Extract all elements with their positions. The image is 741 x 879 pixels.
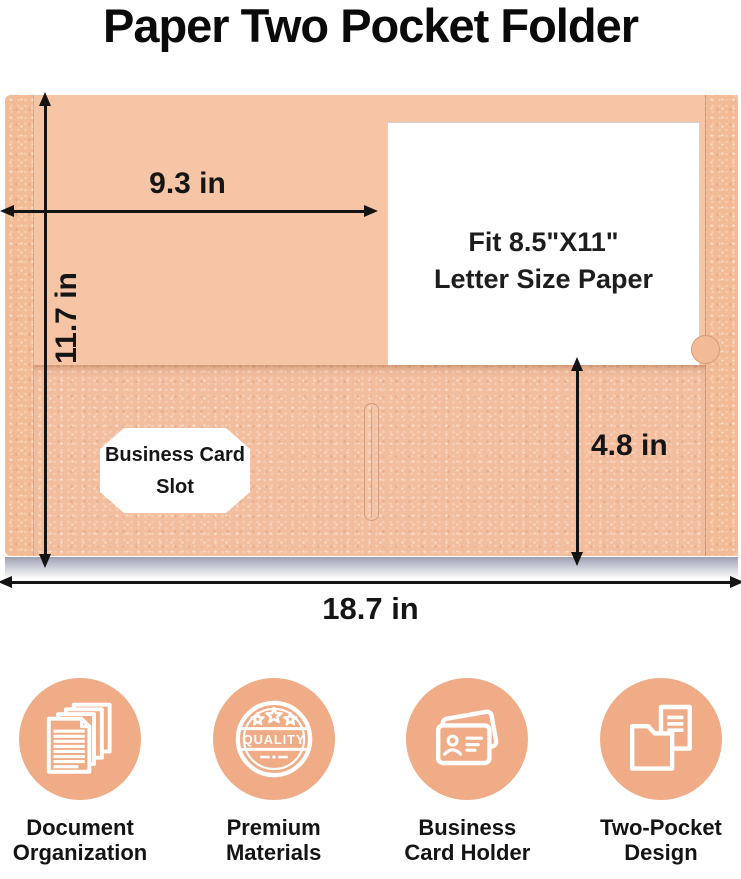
page-title: Paper Two Pocket Folder bbox=[0, 0, 741, 52]
feature-label: Business Card Holder bbox=[404, 815, 530, 865]
feature-circle bbox=[19, 678, 141, 800]
two-pocket-folder-icon bbox=[621, 699, 701, 779]
product-infographic: Paper Two Pocket Folder Fit 8.5"X11" Let… bbox=[0, 0, 741, 879]
thumb-notch bbox=[691, 335, 720, 364]
feature-label-line1: Premium bbox=[226, 815, 321, 840]
feature-label-line2: Card Holder bbox=[404, 840, 530, 865]
width-dimension-arrow bbox=[12, 210, 366, 213]
width-dimension-label: 9.3 in bbox=[100, 167, 275, 201]
folder-shadow bbox=[5, 557, 738, 579]
feature-circle bbox=[406, 678, 528, 800]
pocket-height-dimension-arrow bbox=[576, 369, 579, 554]
feature-label-line1: Two-Pocket bbox=[600, 815, 722, 840]
letter-paper: Fit 8.5"X11" Letter Size Paper bbox=[387, 122, 700, 367]
feature-label-line2: Organization bbox=[13, 840, 147, 865]
feature-label-line1: Business bbox=[404, 815, 530, 840]
feature-label-line1: Document bbox=[13, 815, 147, 840]
height-dimension-label: 11.7 in bbox=[50, 256, 90, 380]
feature-two-pocket-design: Two-Pocket Design bbox=[581, 678, 741, 865]
pocket-crease bbox=[364, 403, 379, 521]
paper-size-note: Fit 8.5"X11" Letter Size Paper bbox=[434, 224, 653, 298]
height-dimension-arrow bbox=[44, 104, 47, 556]
business-card-slot-line2: Slot bbox=[156, 471, 194, 503]
feature-circle bbox=[600, 678, 722, 800]
total-width-dimension-label: 18.7 in bbox=[0, 591, 741, 627]
business-card-icon bbox=[427, 699, 507, 779]
business-card-slot-line1: Business Card bbox=[105, 439, 245, 471]
folder-spine bbox=[5, 95, 34, 556]
documents-icon bbox=[41, 700, 119, 778]
total-width-dimension-arrow bbox=[10, 581, 732, 584]
feature-business-card-holder: Business Card Holder bbox=[387, 678, 547, 865]
feature-label: Document Organization bbox=[13, 815, 147, 865]
folder-right-flap bbox=[705, 95, 738, 556]
business-card-slot-label: Business Card Slot bbox=[100, 428, 250, 513]
feature-label-line2: Materials bbox=[226, 840, 321, 865]
feature-label: Two-Pocket Design bbox=[600, 815, 722, 865]
pocket-height-dimension-label: 4.8 in bbox=[591, 429, 668, 463]
paper-size-note-line1: Fit 8.5"X11" bbox=[434, 224, 653, 261]
feature-document-organization: Document Organization bbox=[0, 678, 160, 865]
feature-label-line2: Design bbox=[600, 840, 722, 865]
paper-size-note-line2: Letter Size Paper bbox=[434, 261, 653, 298]
feature-circle: QUALITY bbox=[213, 678, 335, 800]
folder-illustration: Fit 8.5"X11" Letter Size Paper Business … bbox=[5, 95, 738, 556]
feature-premium-materials: QUALITY Premium Materials bbox=[194, 678, 354, 865]
feature-label: Premium Materials bbox=[226, 815, 321, 865]
quality-badge-text: QUALITY bbox=[242, 732, 305, 747]
quality-badge-icon: QUALITY bbox=[231, 696, 317, 782]
feature-row: Document Organization QUALITY bbox=[0, 678, 741, 865]
